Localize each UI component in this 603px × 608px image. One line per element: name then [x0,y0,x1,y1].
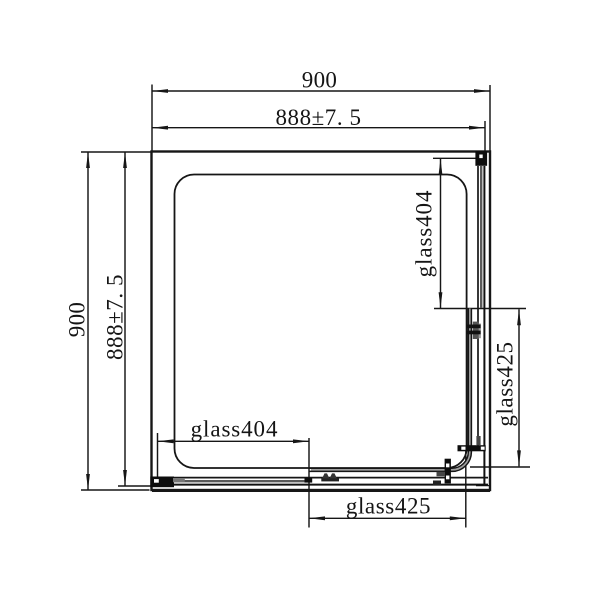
svg-text:900: 900 [65,302,90,337]
svg-text:glass404: glass404 [412,190,437,278]
svg-text:glass425: glass425 [493,341,518,426]
svg-text:glass404: glass404 [191,416,279,441]
svg-text:888±7. 5: 888±7. 5 [275,105,361,130]
svg-text:glass425: glass425 [346,494,431,519]
svg-text:888±7. 5: 888±7. 5 [103,274,128,360]
svg-text:900: 900 [302,68,337,93]
